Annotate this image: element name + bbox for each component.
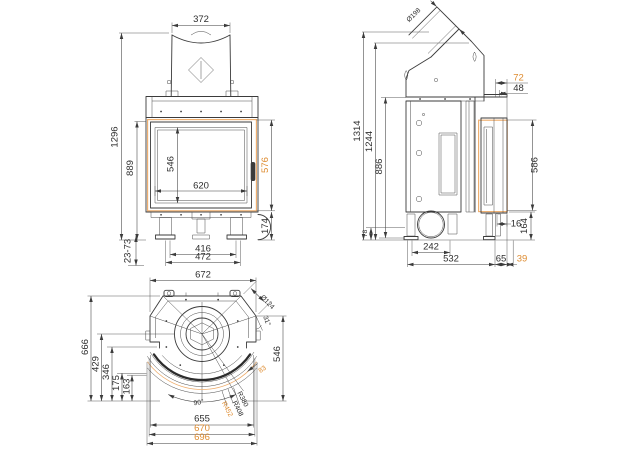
- weld-seam-marks: [405, 52, 477, 80]
- dim-glass-width: 620: [193, 181, 209, 192]
- side-base: [362, 211, 535, 240]
- front-view: 372 1296 889 546 620 576 174 23-73 416: [110, 14, 276, 266]
- leader-line: [248, 364, 258, 372]
- technical-drawing-page: 372 1296 889 546 620 576 174 23-73 416: [0, 0, 624, 460]
- dim-width-outer: 696: [194, 432, 210, 443]
- front-body-outline: [146, 118, 258, 213]
- dim-depth-175: 175: [111, 375, 122, 391]
- dim-top-depth: 48: [513, 83, 524, 94]
- dim-body-width: 672: [195, 270, 211, 281]
- dim-front-depth: 65: [496, 254, 507, 265]
- angle-ref: [256, 316, 263, 331]
- top-view: 672 Ø124 31° 666 429 346 175 163 546: [80, 270, 287, 446]
- front-dimensions: 372 1296 889 546 620 576 174 23-73 416: [110, 14, 276, 266]
- dim-arrow: [431, 1, 437, 7]
- dome-hole: [434, 78, 437, 81]
- feet: [404, 237, 495, 240]
- panel-hole-small: [422, 113, 424, 115]
- dim-depth-163: 163: [122, 379, 133, 395]
- hood-bump-arc: [191, 31, 211, 35]
- front-base: [146, 212, 271, 240]
- door-glass-side: [484, 127, 493, 205]
- panel-hole: [416, 196, 422, 202]
- dim-corner-diameter: Ø124: [259, 294, 276, 311]
- ext-lines: [497, 215, 511, 227]
- dim-flue-diameter: Ø198: [406, 7, 423, 24]
- door-open-lines: [202, 334, 244, 396]
- dim-overall-height: 1314: [352, 120, 363, 141]
- feet: [156, 235, 247, 239]
- front-top-plate: [146, 97, 258, 118]
- tab-hole: [233, 292, 237, 296]
- fan-outlet-circle: [418, 211, 445, 238]
- hood-feet: [166, 91, 238, 97]
- dim-base-height: 174: [260, 218, 271, 234]
- dim-hood-width: 372: [193, 14, 209, 25]
- side-flue: Ø198: [406, 1, 466, 57]
- fan-outlet-inner: [419, 212, 443, 236]
- dim-leg-span-outer: 472: [195, 252, 211, 263]
- dim-depth-429: 429: [91, 356, 102, 372]
- panel-cutout-inner: [441, 135, 455, 193]
- panel-hole: [416, 150, 422, 156]
- dome-outline: [406, 29, 484, 97]
- fireplace-technical-drawing: 372 1296 889 546 620 576 174 23-73 416: [0, 0, 624, 460]
- mid-column: [466, 101, 474, 212]
- legs: [160, 218, 243, 236]
- side-dome: [405, 29, 484, 97]
- fold-lines: [150, 296, 256, 334]
- ext-lines: [119, 33, 169, 240]
- dim-body-height: 886: [374, 159, 385, 175]
- tab-hole: [167, 292, 171, 296]
- dim-glass-plane-depth: 546: [272, 346, 283, 362]
- top-plate-lines: [152, 97, 252, 118]
- side-body: [406, 95, 507, 214]
- dim-door-height: 576: [260, 157, 271, 173]
- door-frame-highlight: [148, 120, 257, 211]
- dim-base-span: 242: [423, 242, 439, 253]
- dim-flue-outlet-height: 1244: [364, 131, 375, 152]
- top-edge-ticks: [186, 293, 218, 297]
- dim-rear-clearance: 78: [362, 230, 369, 238]
- panel-cutout: [439, 133, 457, 195]
- dim-swing-angle: 90°: [193, 398, 205, 407]
- rear-panel: [406, 101, 461, 212]
- dim-base-height: 164: [519, 218, 530, 234]
- dim-overall-height: 1296: [110, 126, 121, 147]
- panel-hole: [416, 120, 422, 126]
- door-frame-lines: [494, 118, 503, 213]
- dim-leg-adjust: 23-73: [123, 239, 134, 263]
- dim-body-height: 889: [125, 160, 136, 176]
- door-handle: [251, 162, 256, 181]
- dim-door-height: 586: [530, 157, 541, 173]
- hood-top-arc: [172, 35, 230, 43]
- dim-door-projection: 39: [517, 254, 528, 265]
- center-foot: [193, 235, 210, 239]
- side-dimensions: 1314 1244 886 78 72 48 586 16 164: [352, 32, 541, 267]
- front-hood: [166, 31, 238, 96]
- side-view: Ø198: [352, 1, 541, 267]
- dim-glass-height: 546: [166, 156, 177, 172]
- dim-corner-angle: 31°: [261, 314, 272, 327]
- front-body: [146, 118, 258, 213]
- dim-overall-depth: 666: [80, 339, 91, 355]
- dim-flue-offset: 72: [513, 73, 524, 84]
- hood-diamond-badge: [189, 58, 214, 83]
- top-plate-lines: [406, 95, 507, 102]
- top-plate: [146, 97, 258, 118]
- dim-body-depth: 532: [443, 254, 459, 265]
- dim-arc-83: 83: [258, 365, 268, 375]
